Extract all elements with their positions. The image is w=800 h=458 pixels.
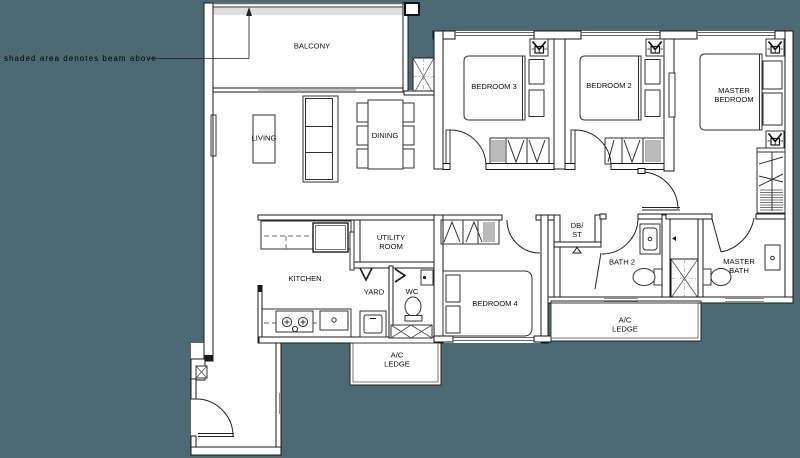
- svg-text:WC: WC: [406, 287, 419, 296]
- svg-text:BEDROOM 2: BEDROOM 2: [586, 81, 632, 90]
- svg-text:KITCHEN: KITCHEN: [288, 274, 321, 283]
- svg-text:A/C: A/C: [619, 316, 632, 325]
- svg-text:LIVING: LIVING: [252, 134, 277, 143]
- svg-text:BEDROOM: BEDROOM: [714, 95, 753, 104]
- svg-text:ROOM: ROOM: [379, 242, 403, 251]
- svg-text:YARD: YARD: [364, 288, 385, 297]
- svg-text:BEDROOM 4: BEDROOM 4: [472, 299, 518, 308]
- svg-text:BATH: BATH: [729, 266, 749, 275]
- svg-text:LEDGE: LEDGE: [384, 360, 410, 369]
- svg-text:BALCONY: BALCONY: [294, 42, 330, 51]
- svg-text:A/C: A/C: [391, 351, 404, 360]
- svg-text:DB/: DB/: [571, 221, 585, 230]
- svg-text:UTILITY: UTILITY: [377, 233, 405, 242]
- svg-text:shaded area denotes beam above: shaded area denotes beam above: [4, 54, 157, 63]
- svg-text:ST: ST: [572, 230, 582, 239]
- svg-text:MASTER: MASTER: [723, 257, 755, 266]
- svg-text:BATH 2: BATH 2: [609, 258, 635, 267]
- svg-text:LEDGE: LEDGE: [612, 325, 638, 334]
- svg-text:DINING: DINING: [372, 131, 399, 140]
- svg-text:MASTER: MASTER: [718, 86, 750, 95]
- svg-text:BEDROOM 3: BEDROOM 3: [471, 82, 517, 91]
